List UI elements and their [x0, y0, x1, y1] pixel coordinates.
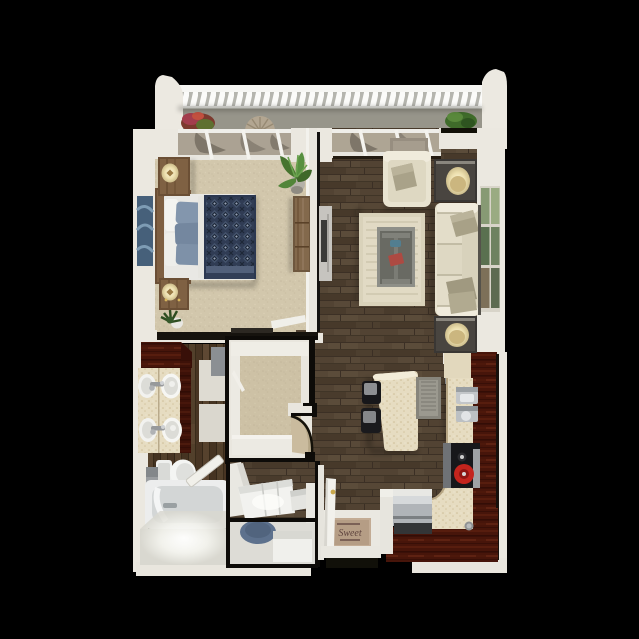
- svg-text:Sweet: Sweet: [338, 528, 362, 539]
